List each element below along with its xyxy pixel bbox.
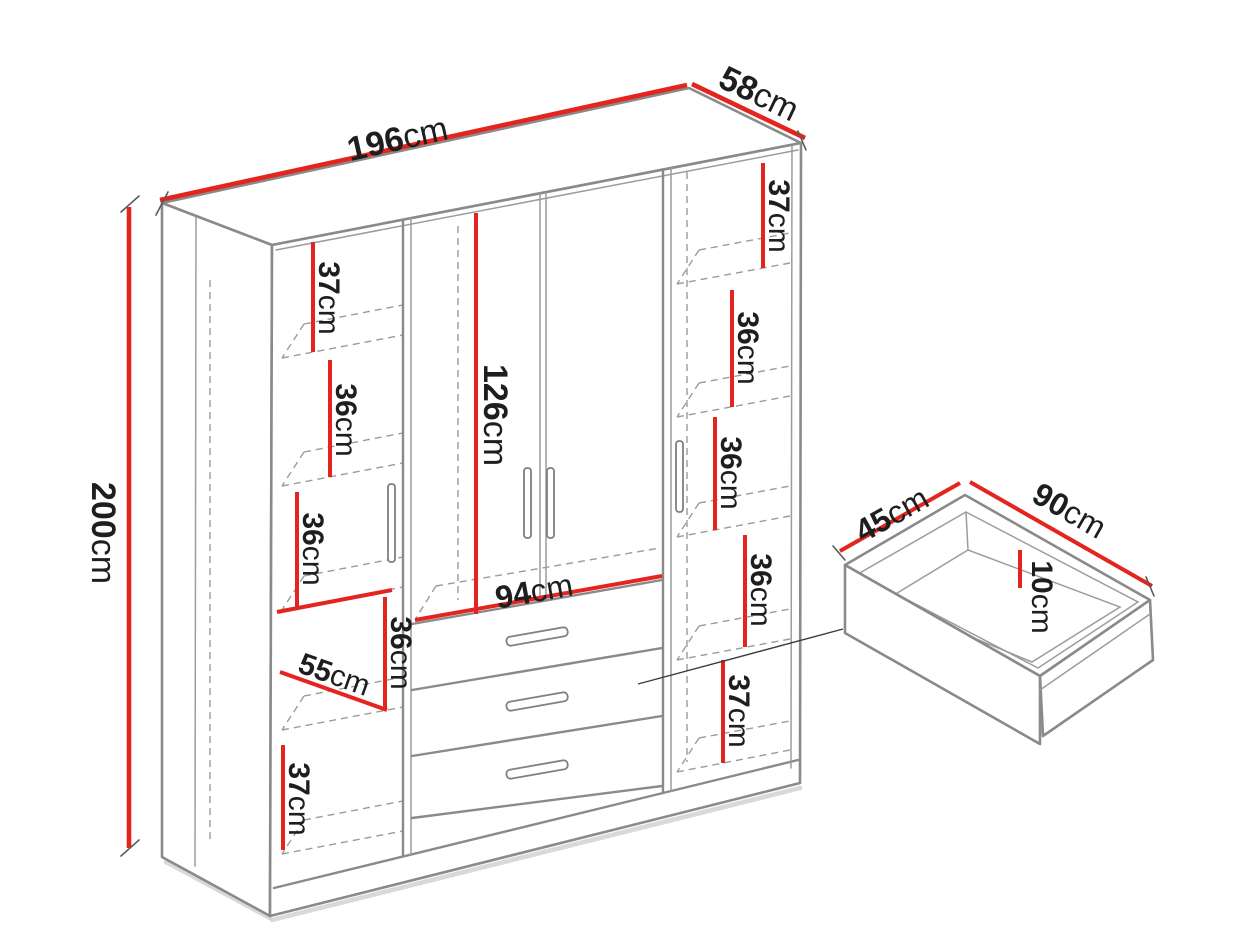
label-left-37b: 37cm [282,762,315,835]
right-c4-unit: cm [744,587,777,627]
label-drawer-90: 90cm [1027,475,1113,545]
left-c3-value: 36 [296,512,329,545]
drawer-width-unit: cm [527,567,575,610]
label-right-37a: 37cm [762,179,795,252]
label-center-126: 126cm [476,364,514,466]
wardrobe-front-face [270,143,801,916]
label-drawer-10: 10cm [1025,560,1058,633]
height-unit: cm [84,539,122,584]
wardrobe-left-side-panel [162,203,272,916]
label-left-36b: 36cm [296,512,329,585]
label-right-36b: 36cm [714,436,747,509]
door-handle-left [388,484,395,562]
drawer-height-unit: cm [1025,594,1058,634]
door-handle-right [676,441,683,512]
right-c5-unit: cm [722,708,755,748]
door-height-value: 126 [476,364,514,421]
label-right-37b: 37cm [722,674,755,747]
label-right-36c: 36cm [744,553,777,626]
height-value: 200 [84,482,122,539]
left-c1-unit: cm [312,295,345,335]
left-c2-unit: cm [329,417,362,457]
left-c2-value: 36 [329,383,362,416]
label-height-200: 200cm [84,482,122,584]
tick-90-right [1146,577,1154,596]
door-height-unit: cm [476,421,514,466]
left-c1-value: 37 [312,261,345,294]
label-right-36a: 36cm [731,311,764,384]
left-c4-value: 36 [384,616,417,649]
wardrobe-drawing [162,88,801,920]
right-c3-unit: cm [714,470,747,510]
right-c4-value: 36 [744,553,777,586]
label-left-36a: 36cm [329,383,362,456]
left-c3-unit: cm [296,546,329,586]
right-c1-value: 37 [762,179,795,212]
right-c3-value: 36 [714,436,747,469]
right-c2-value: 36 [731,311,764,344]
right-c1-unit: cm [762,213,795,253]
left-c4-unit: cm [384,650,417,690]
dimension-diagram: 196cm 58cm 200cm 37cm 36cm 36cm 36cm 55c… [0,0,1238,928]
door-handle-center-left [524,468,531,538]
door-handle-center-right [547,468,554,538]
label-left-36c: 36cm [384,616,417,689]
right-c5-value: 37 [722,674,755,707]
drawer-height-value: 10 [1025,560,1058,593]
right-c2-unit: cm [731,345,764,385]
diagram-canvas: 196cm 58cm 200cm 37cm 36cm 36cm 36cm 55c… [0,0,1238,928]
left-c5-unit: cm [282,796,315,836]
label-left-37a: 37cm [312,261,345,334]
left-c5-value: 37 [282,762,315,795]
left-panel-inner-line [195,218,196,866]
